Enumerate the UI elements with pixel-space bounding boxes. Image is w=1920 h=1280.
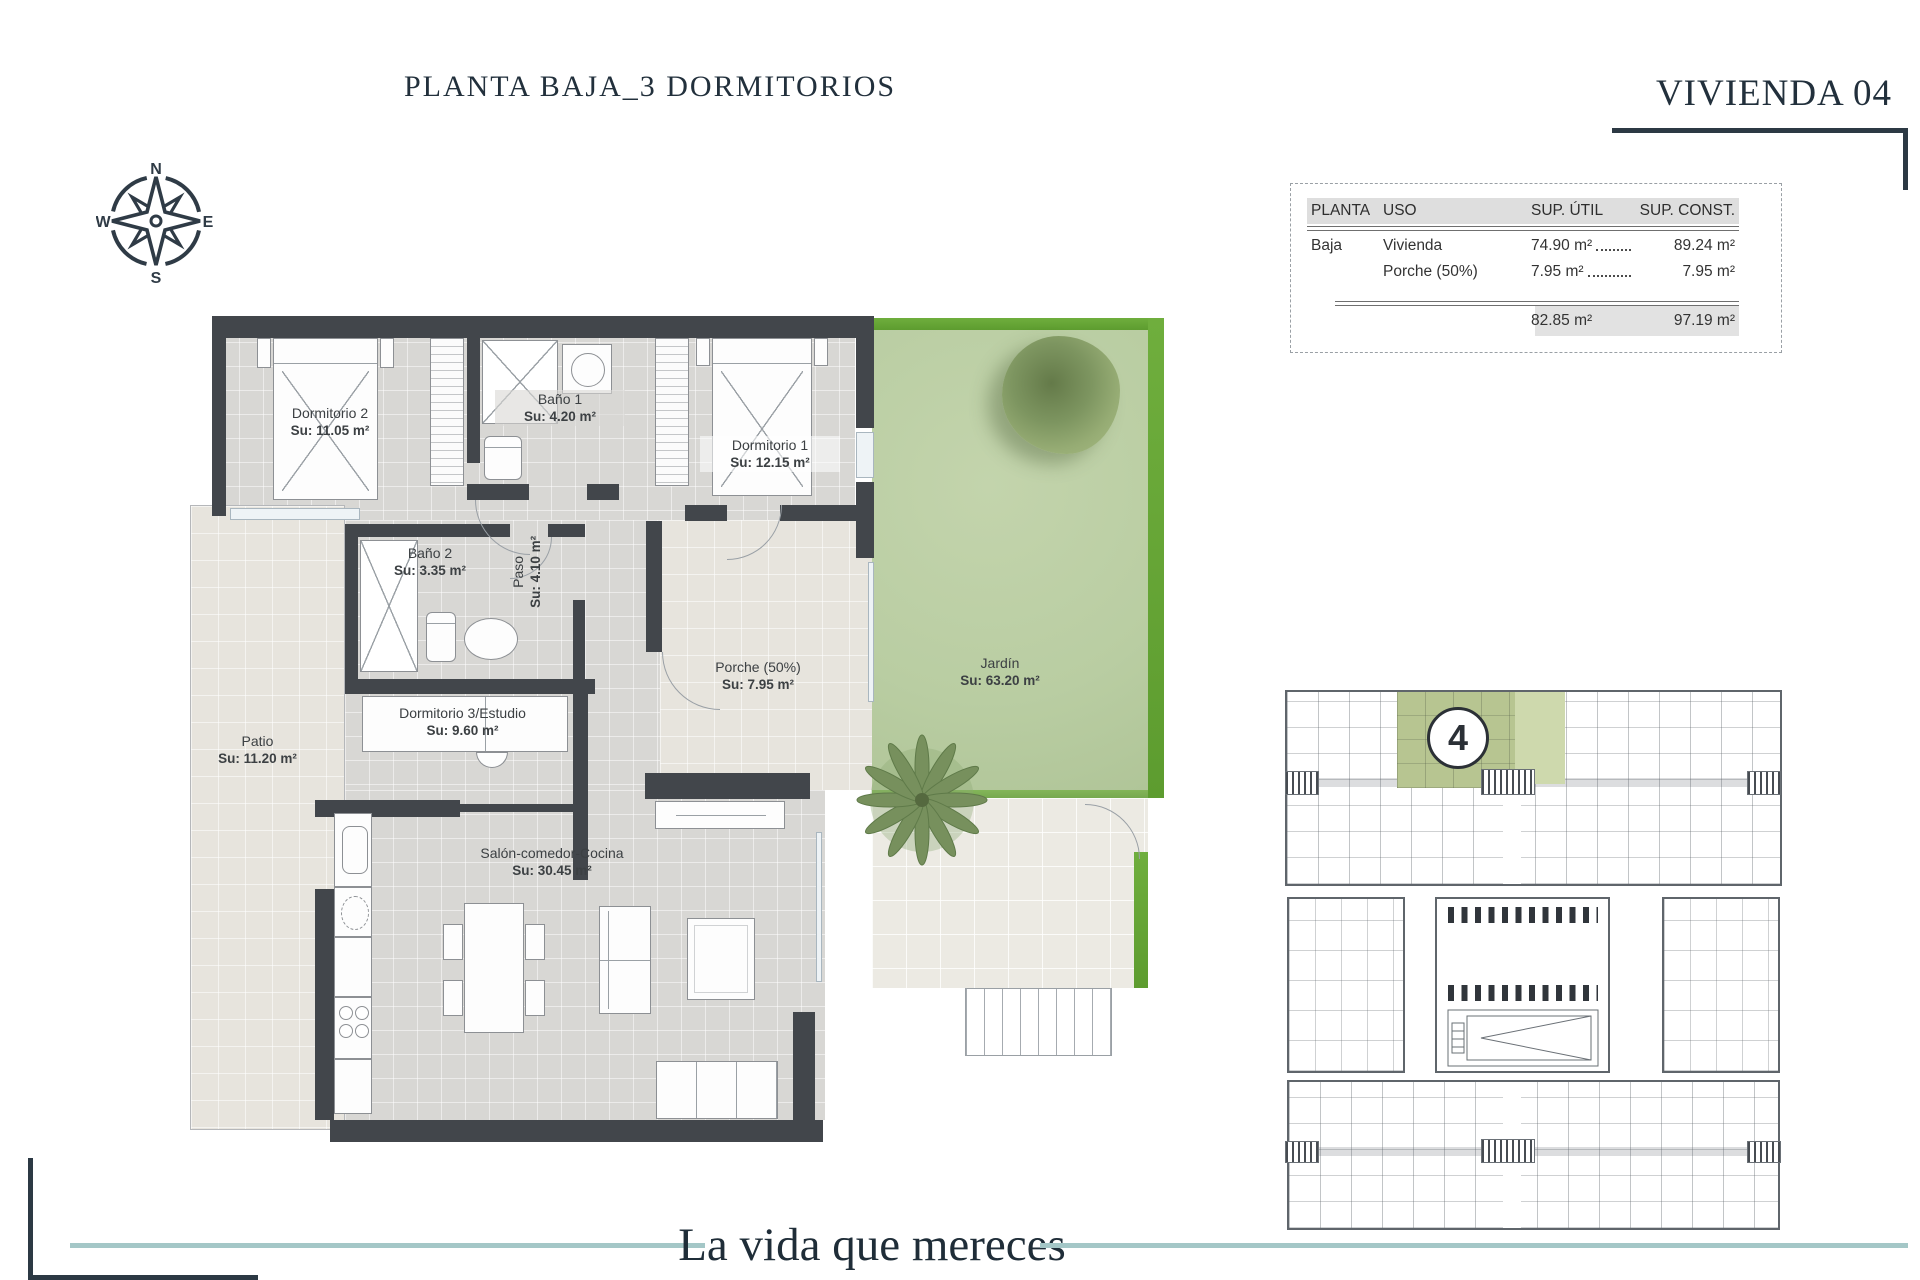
cell-util: 7.95 m² [1531, 263, 1635, 281]
wall [646, 521, 662, 652]
col-planta: PLANTA [1311, 202, 1383, 220]
cell-const: 7.95 m² [1635, 263, 1735, 281]
wall [212, 316, 226, 516]
tagline-rule-right [1040, 1243, 1908, 1248]
tagline: La vida que mereces [678, 1218, 1066, 1272]
kitchen-cooktop [334, 997, 372, 1059]
window [856, 432, 874, 478]
room-label-patio: Patio Su: 11.20 m² [185, 732, 330, 768]
cell-util-value: 7.95 m² [1531, 263, 1584, 281]
wall [460, 804, 580, 812]
room-label-dormitorio1: Dormitorio 1 Su: 12.15 m² [700, 436, 840, 472]
sunbeds-row [1448, 985, 1598, 1001]
window [868, 562, 874, 702]
room-label-dormitorio2: Dormitorio 2 Su: 11.05 m² [260, 404, 400, 440]
wall [587, 484, 619, 500]
col-sup-const: SUP. CONST. [1635, 202, 1735, 220]
room-label-dormitorio3: Dormitorio 3/Estudio Su: 9.60 m² [375, 704, 550, 740]
cell-util: 74.90 m² [1531, 237, 1635, 255]
wall [645, 773, 810, 799]
table-totals-row: 82.85 m² 97.19 m² [1307, 306, 1739, 336]
wardrobe [430, 338, 464, 486]
garden-hedge-right [1148, 318, 1164, 798]
brochure-page: PLANTA BAJA_3 DORMITORIOS VIVIENDA 04 N … [0, 0, 1920, 1280]
window [230, 508, 360, 520]
wardrobe [655, 338, 689, 486]
dining-table [464, 903, 524, 1033]
dot-leader [1596, 249, 1631, 251]
wall [330, 1120, 823, 1142]
tree-icon [1002, 336, 1120, 454]
compass-east-label: E [203, 214, 214, 231]
corner-bracket-bottom-left [28, 1275, 258, 1280]
stairs [1481, 769, 1535, 795]
total-const: 97.19 m² [1635, 312, 1735, 330]
floor-plan: Dormitorio 2 Su: 11.05 m² Baño 1 Su: 4.2… [180, 312, 1172, 1144]
toilet [484, 436, 522, 480]
page-title: PLANTA BAJA_3 DORMITORIOS [404, 70, 896, 104]
col-sup-util: SUP. ÚTIL [1531, 202, 1635, 220]
stairs [1747, 1141, 1781, 1163]
wall [793, 1012, 815, 1120]
total-util: 82.85 m² [1531, 312, 1635, 330]
corner-bracket-top-right [1612, 128, 1908, 133]
dot-leader [1588, 275, 1631, 277]
col-uso: USO [1383, 202, 1531, 220]
wall [780, 505, 856, 521]
room-label-porche: Porche (50%) Su: 7.95 m² [688, 658, 828, 694]
area-table: PLANTA USO SUP. ÚTIL SUP. CONST. Baja Vi… [1290, 183, 1782, 353]
sofa [599, 906, 651, 1014]
palm-tree-icon [852, 730, 992, 870]
compass-north-label: N [150, 161, 162, 178]
compass-south-label: S [151, 270, 162, 286]
nightstand [814, 338, 828, 366]
corner-bracket-top-right [1903, 128, 1908, 190]
sunbeds-row [1448, 907, 1598, 923]
kitchen-cabinet [334, 1059, 372, 1114]
wall [467, 338, 480, 463]
wall [685, 505, 727, 521]
kitchen-counter [334, 937, 372, 997]
cell-planta: Baja [1311, 237, 1383, 255]
wall [345, 679, 595, 694]
vivienda-title: VIVIENDA 04 [1656, 72, 1892, 115]
wall [573, 600, 585, 694]
kitchen-counter-sink [334, 813, 372, 887]
cell-uso: Porche (50%) [1383, 263, 1531, 281]
room-label-bano1: Baño 1 Su: 4.20 m² [495, 390, 625, 426]
building-right [1662, 897, 1780, 1073]
wall [315, 889, 334, 1120]
site-plan: 4 [1285, 685, 1785, 1235]
kitchen-oven [334, 887, 372, 937]
tv-unit [655, 801, 785, 829]
room-label-salon: Salón-comedor-Cocina Su: 30.45 m² [452, 844, 652, 880]
window [816, 832, 822, 982]
wall [856, 316, 874, 428]
nightstand [257, 338, 271, 368]
pool [1447, 1009, 1599, 1067]
compass-rose-icon: N E S W [96, 156, 216, 286]
washbasin [562, 344, 612, 394]
armchair [687, 918, 755, 1000]
wall [467, 484, 529, 500]
garden-hedge-right-lower [1134, 852, 1148, 988]
wall [856, 482, 874, 558]
stairs [1285, 1141, 1319, 1163]
cell-uso: Vivienda [1383, 237, 1531, 255]
dining-chair [443, 924, 463, 960]
room-label-bano2: Baño 2 Su: 3.35 m² [365, 544, 495, 580]
unit-number: 4 [1448, 717, 1468, 759]
nightstand [380, 338, 394, 368]
area-table-header: PLANTA USO SUP. ÚTIL SUP. CONST. [1307, 198, 1739, 224]
table-row: Baja Vivienda 74.90 m² 89.24 m² [1307, 231, 1739, 257]
stairs [1747, 771, 1781, 795]
dining-chair [443, 980, 463, 1016]
exterior-steps [965, 988, 1112, 1056]
building-left [1287, 897, 1405, 1073]
garden-hedge-top [872, 318, 1164, 330]
toilet [426, 612, 456, 662]
room-label-jardin: Jardín Su: 63.20 m² [930, 654, 1070, 690]
cell-util-value: 74.90 m² [1531, 237, 1592, 255]
dining-chair [525, 980, 545, 1016]
dining-chair [525, 924, 545, 960]
table-row: Porche (50%) 7.95 m² 7.95 m² [1307, 257, 1739, 283]
tagline-rule-left [70, 1243, 705, 1248]
corner-bracket-bottom-left [28, 1158, 33, 1280]
compass-west-label: W [96, 214, 111, 231]
unit-number-badge: 4 [1427, 707, 1489, 769]
stairs [1481, 1139, 1535, 1163]
sideboard [656, 1061, 778, 1119]
bed [712, 338, 812, 496]
stairs [1285, 771, 1319, 795]
wall [212, 316, 858, 338]
wall [548, 524, 585, 537]
wall [345, 524, 358, 684]
nightstand [696, 338, 710, 366]
cell-const: 89.24 m² [1635, 237, 1735, 255]
room-label-paso: Paso Su: 4.10 m² [509, 517, 545, 627]
